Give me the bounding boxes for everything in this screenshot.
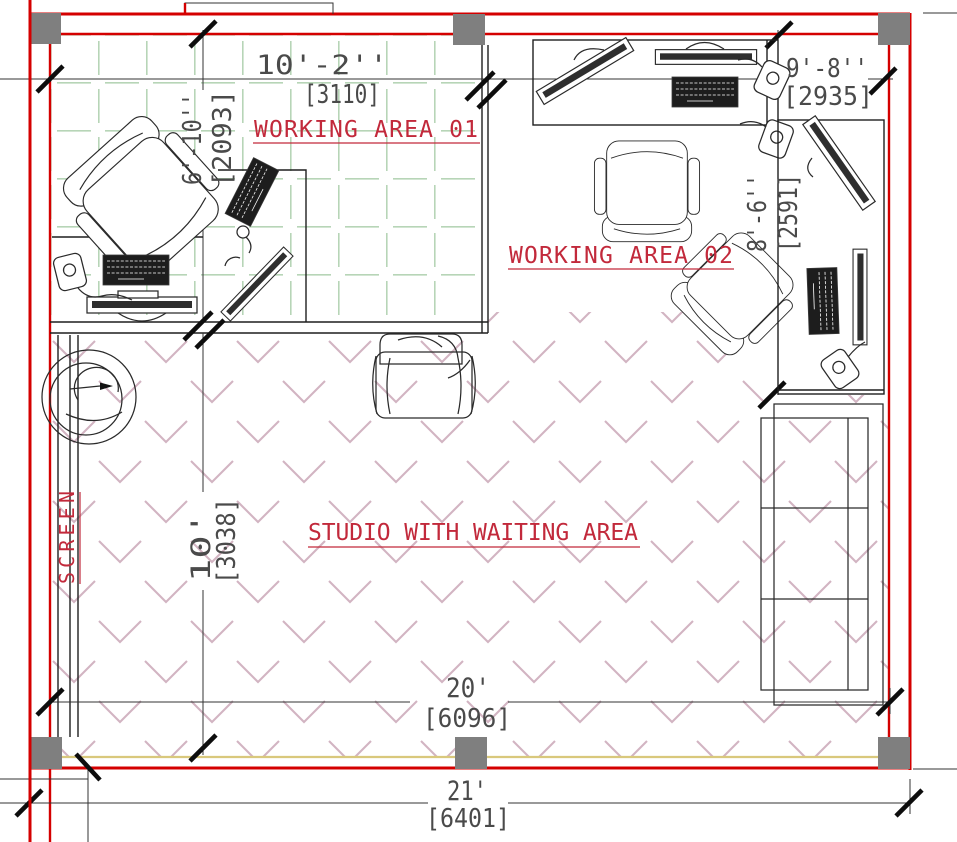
dim-top-left-imperial: 10'-2'' (256, 50, 388, 81)
column-top-left (29, 13, 61, 44)
dim-studio-height-metric: [3038] (212, 498, 242, 584)
monitor (87, 297, 197, 313)
monitor (803, 116, 875, 210)
column-top-middle (453, 14, 485, 45)
dim-bottom-imperial: 20' (446, 673, 490, 704)
dim-top-left-metric: [3110] (304, 80, 380, 110)
monitor-stand (686, 43, 724, 50)
dim-left-imperial: 6'-10'' (178, 93, 208, 185)
label-studio: STUDIO WITH WAITING AREA (308, 520, 638, 546)
dim-right-imperial: 8'-6'' (743, 174, 773, 252)
monitor (853, 249, 867, 345)
dim-overall-metric: [6401] (426, 804, 510, 834)
mouse (819, 347, 861, 391)
office-chair (594, 141, 699, 242)
dim-overall-imperial: 21' (447, 776, 487, 807)
keyboard (807, 267, 839, 334)
label-working-area-01: WORKING AREA 01 (254, 117, 478, 143)
monitor-stand (808, 158, 813, 177)
monitor (536, 38, 633, 105)
dim-top-right-imperial: 9'-8'' (786, 54, 868, 84)
dim-bottom-metric: [6096] (423, 704, 511, 734)
top-recess (185, 3, 333, 14)
column-top-right (878, 13, 910, 45)
keyboard (103, 255, 169, 285)
keyboard (672, 77, 738, 107)
label-working-area-02: WORKING AREA 02 (509, 243, 733, 269)
dim-top-right-metric: [2935] (783, 82, 873, 112)
dim-right-metric: [2591] (774, 174, 804, 252)
floor-plan-canvas: 10'-2'' [3110] 9'-8'' [2935] 6'-10'' [20… (0, 0, 957, 842)
mouse (237, 226, 249, 238)
dim-left-metric: [2093] (208, 90, 238, 187)
column-bottom-middle (455, 737, 487, 769)
floor-plan: 10'-2'' [3110] 9'-8'' [2935] 6'-10'' [20… (0, 0, 957, 842)
column-bottom-left (30, 737, 62, 769)
monitor (655, 50, 756, 65)
column-bottom-right (878, 737, 910, 769)
